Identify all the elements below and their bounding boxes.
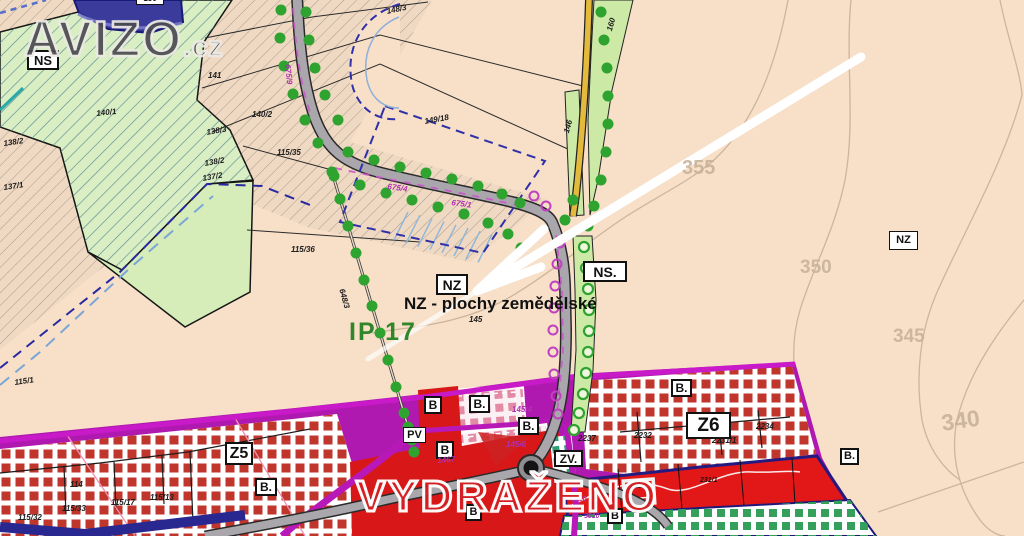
diagonal-watermark: VYDRAŽENO: [356, 472, 659, 522]
zoning-map: NSNZNS.NZZ5Z6ZV.BBBBB.B.B.B.B.PV150140/1…: [0, 0, 1024, 536]
avizo-logo-suffix: .cz: [183, 31, 223, 62]
map-graphics: [0, 0, 1024, 536]
avizo-logo-watermark: AVIZO.cz: [24, 10, 223, 68]
ip-feature-label: IP 17: [349, 318, 417, 347]
zone-callout-text: NZ - plochy zemědělské: [404, 294, 597, 314]
